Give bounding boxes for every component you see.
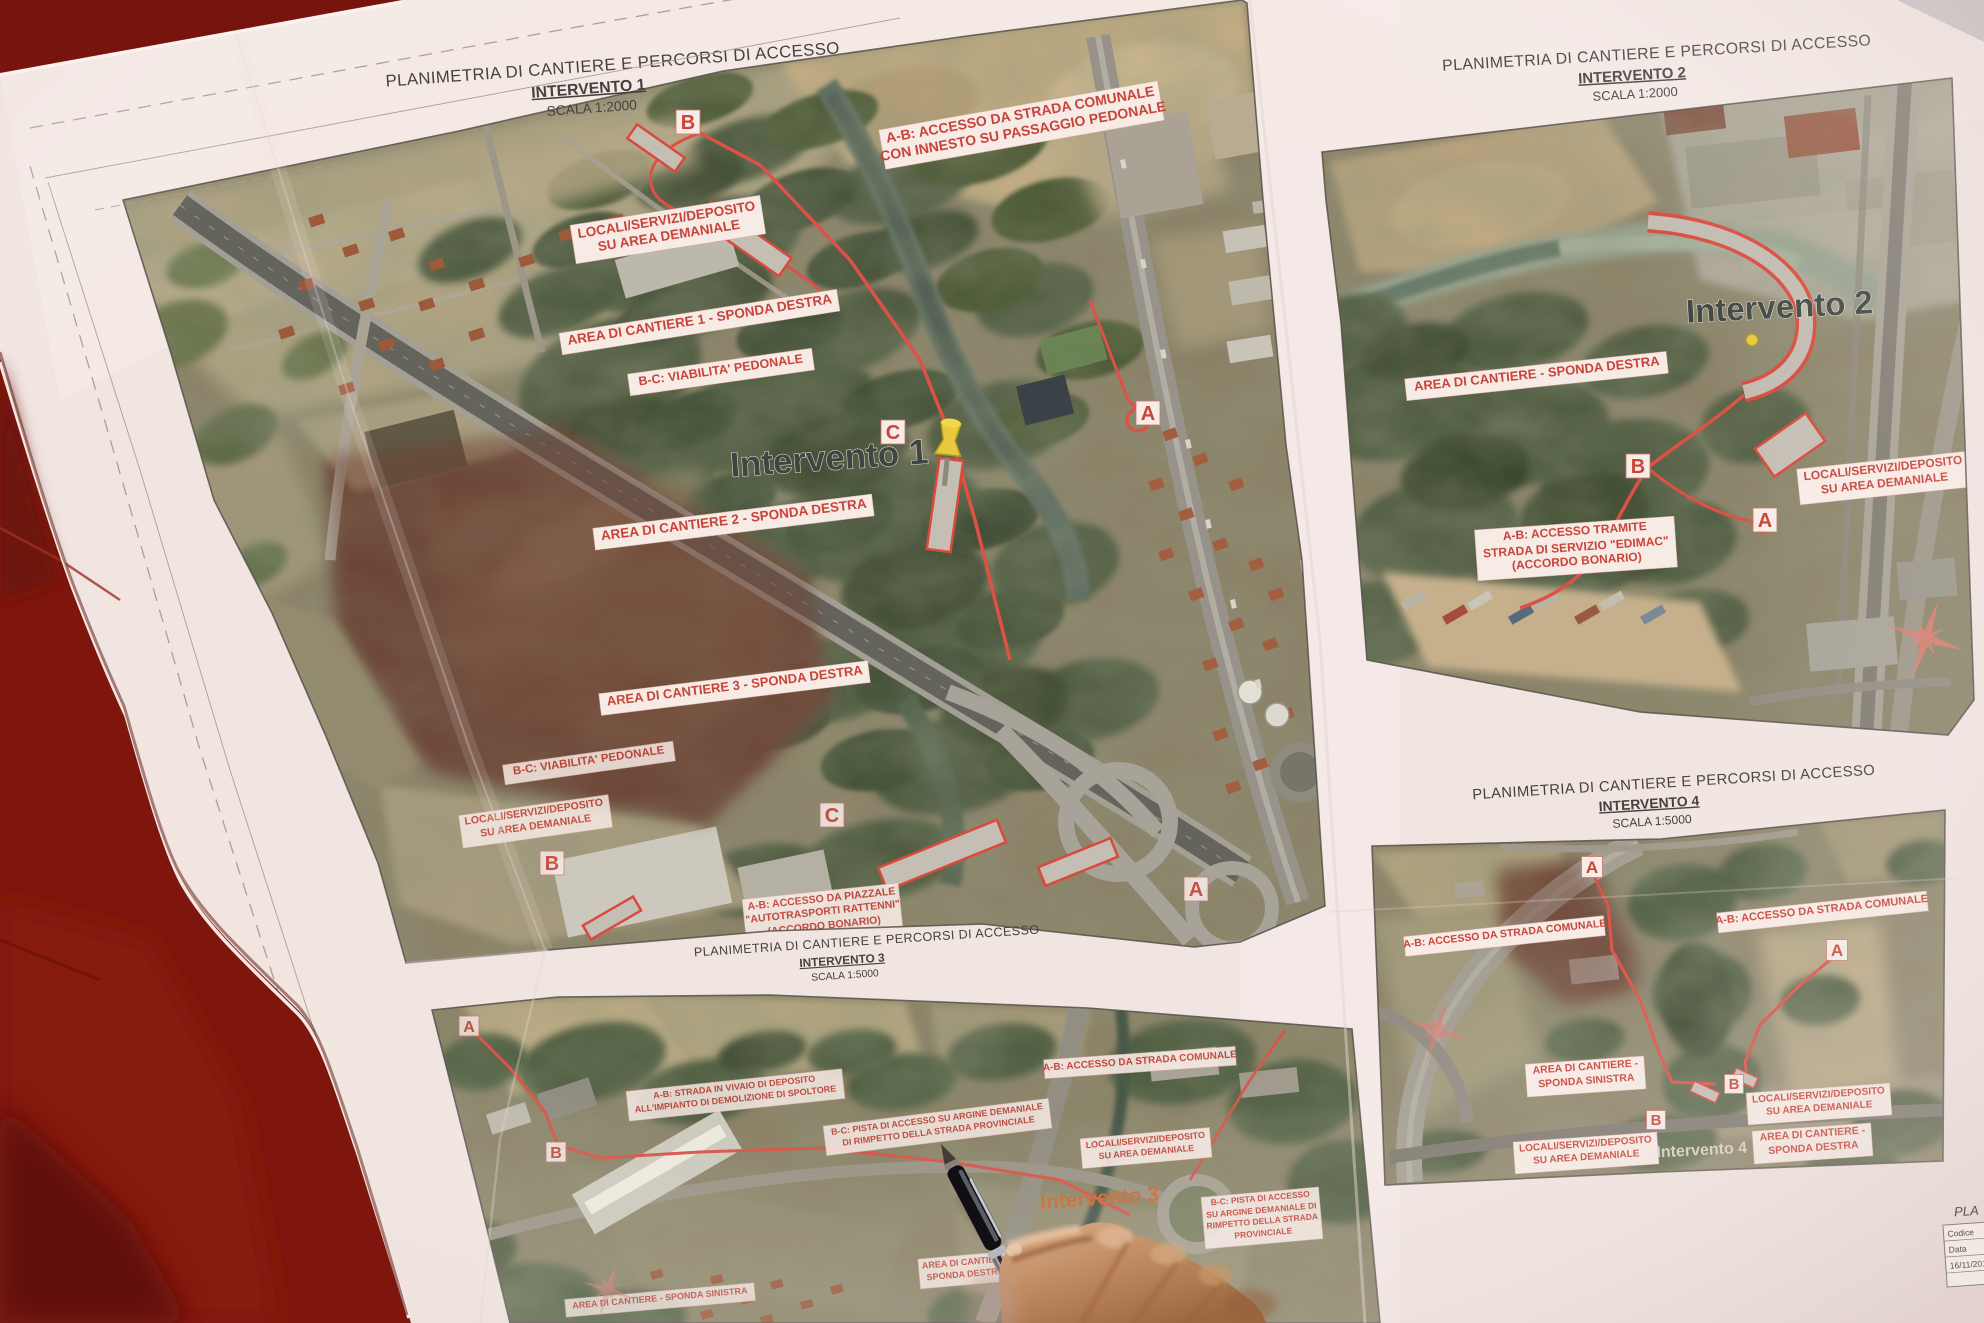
svg-text:Data: Data — [1948, 1244, 1967, 1255]
svg-text:PLA: PLA — [1953, 1203, 1979, 1220]
svg-text:Codice: Codice — [1947, 1227, 1974, 1239]
